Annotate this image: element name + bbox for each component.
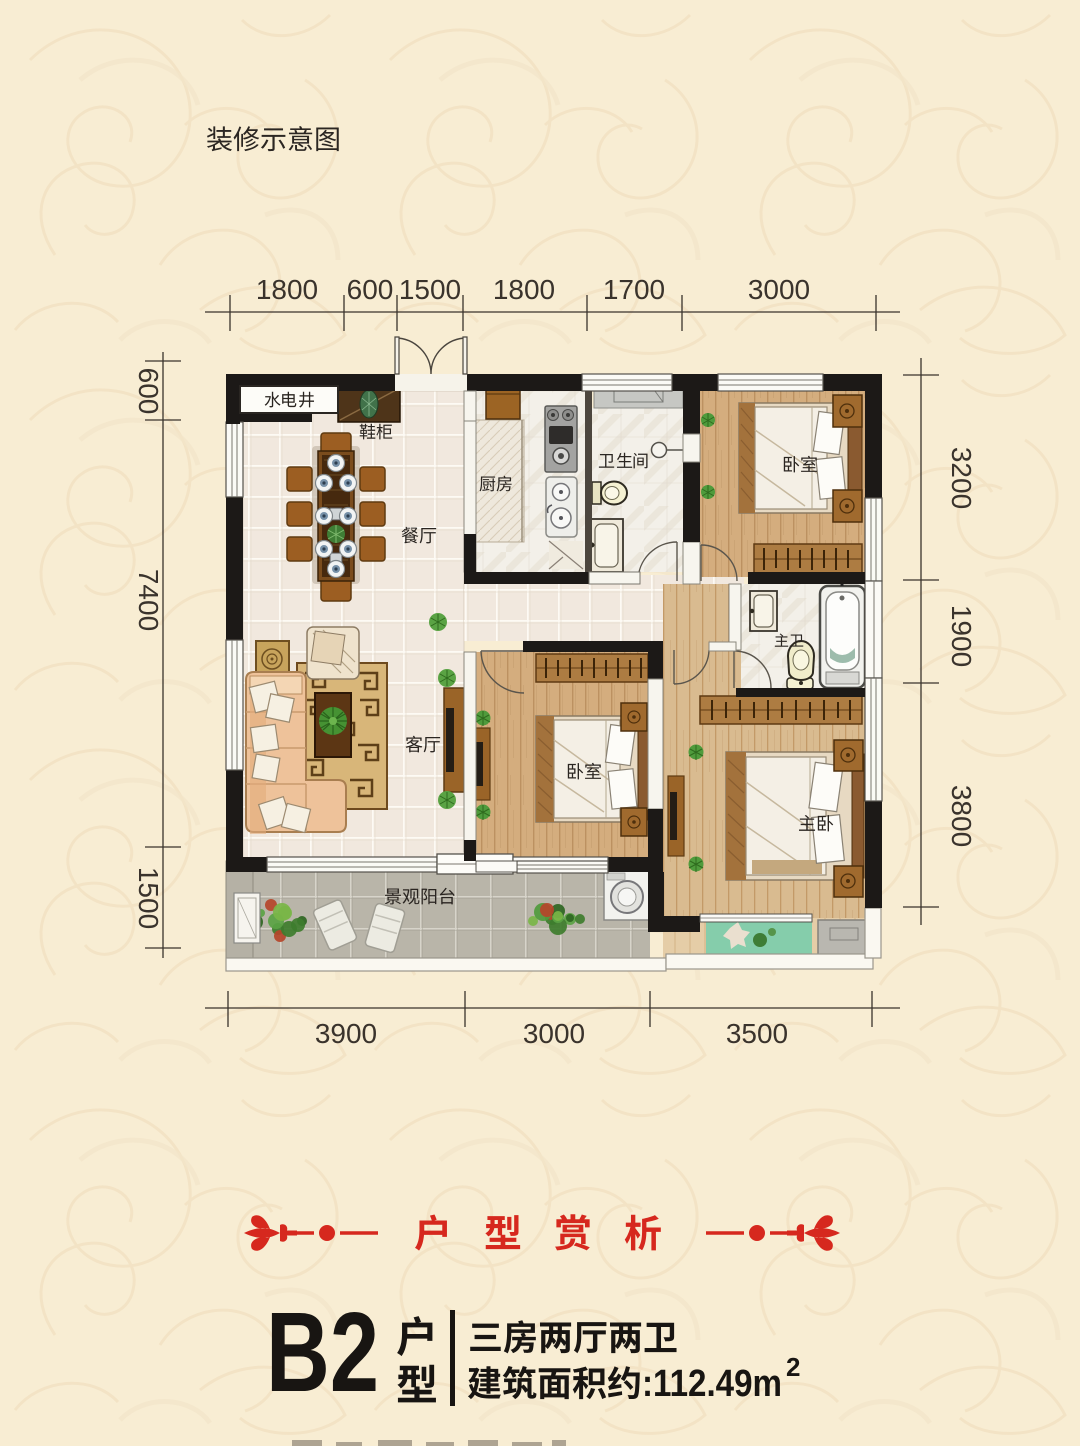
- svg-text:3200: 3200: [946, 447, 977, 509]
- svg-text:1800: 1800: [256, 274, 318, 305]
- svg-text:1900: 1900: [946, 605, 977, 667]
- svg-text:3000: 3000: [748, 274, 810, 305]
- svg-text:3500: 3500: [726, 1018, 788, 1049]
- svg-text:7400: 7400: [133, 569, 164, 631]
- svg-text:3000: 3000: [523, 1018, 585, 1049]
- svg-text::112.49m: :112.49m: [642, 1363, 782, 1405]
- svg-text:600: 600: [133, 368, 164, 415]
- svg-text:3800: 3800: [946, 785, 977, 847]
- svg-text:1700: 1700: [603, 274, 665, 305]
- svg-text:600: 600: [347, 274, 394, 305]
- svg-text:1500: 1500: [399, 274, 461, 305]
- svg-text:3900: 3900: [315, 1018, 377, 1049]
- svg-text:B2: B2: [266, 1289, 379, 1415]
- svg-text:1800: 1800: [493, 274, 555, 305]
- svg-text:2: 2: [786, 1352, 800, 1382]
- svg-text:1500: 1500: [133, 867, 164, 929]
